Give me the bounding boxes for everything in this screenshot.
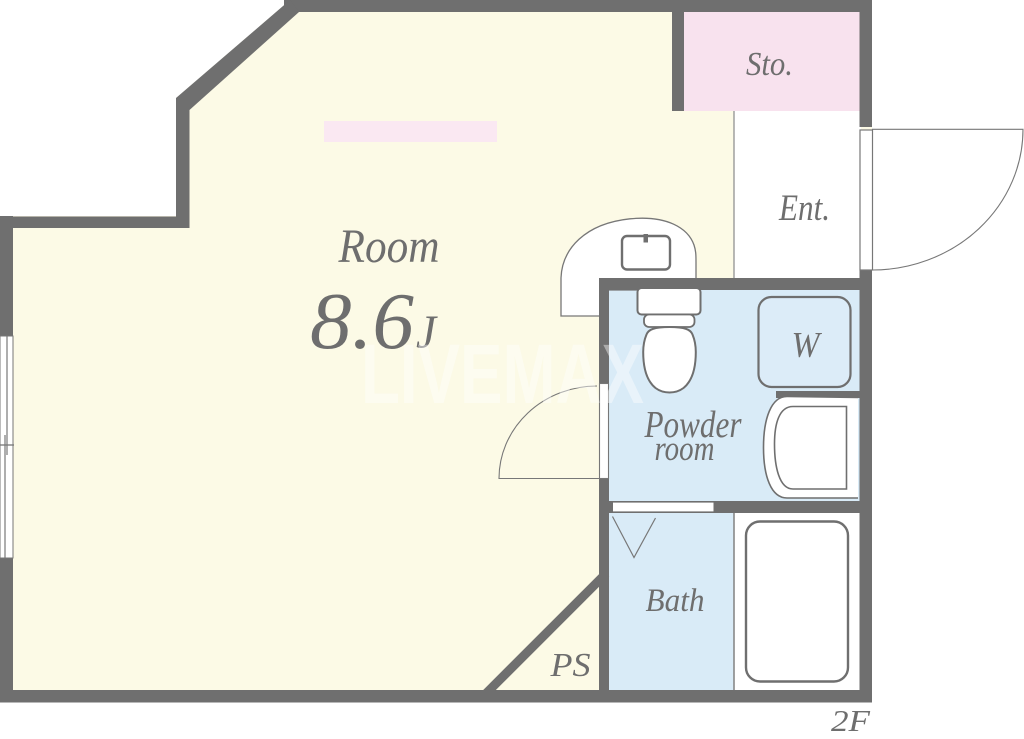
svg-text:2F: 2F xyxy=(831,703,871,738)
svg-text:room: room xyxy=(655,429,715,468)
svg-text:LIVEMAX: LIVEMAX xyxy=(361,327,644,421)
svg-text:Bath: Bath xyxy=(646,583,705,619)
svg-text:Room: Room xyxy=(338,220,440,273)
svg-text:W: W xyxy=(792,325,823,365)
svg-text:Sto.: Sto. xyxy=(746,46,793,83)
svg-text:Ent.: Ent. xyxy=(778,188,830,229)
svg-text:PS: PS xyxy=(549,647,590,684)
